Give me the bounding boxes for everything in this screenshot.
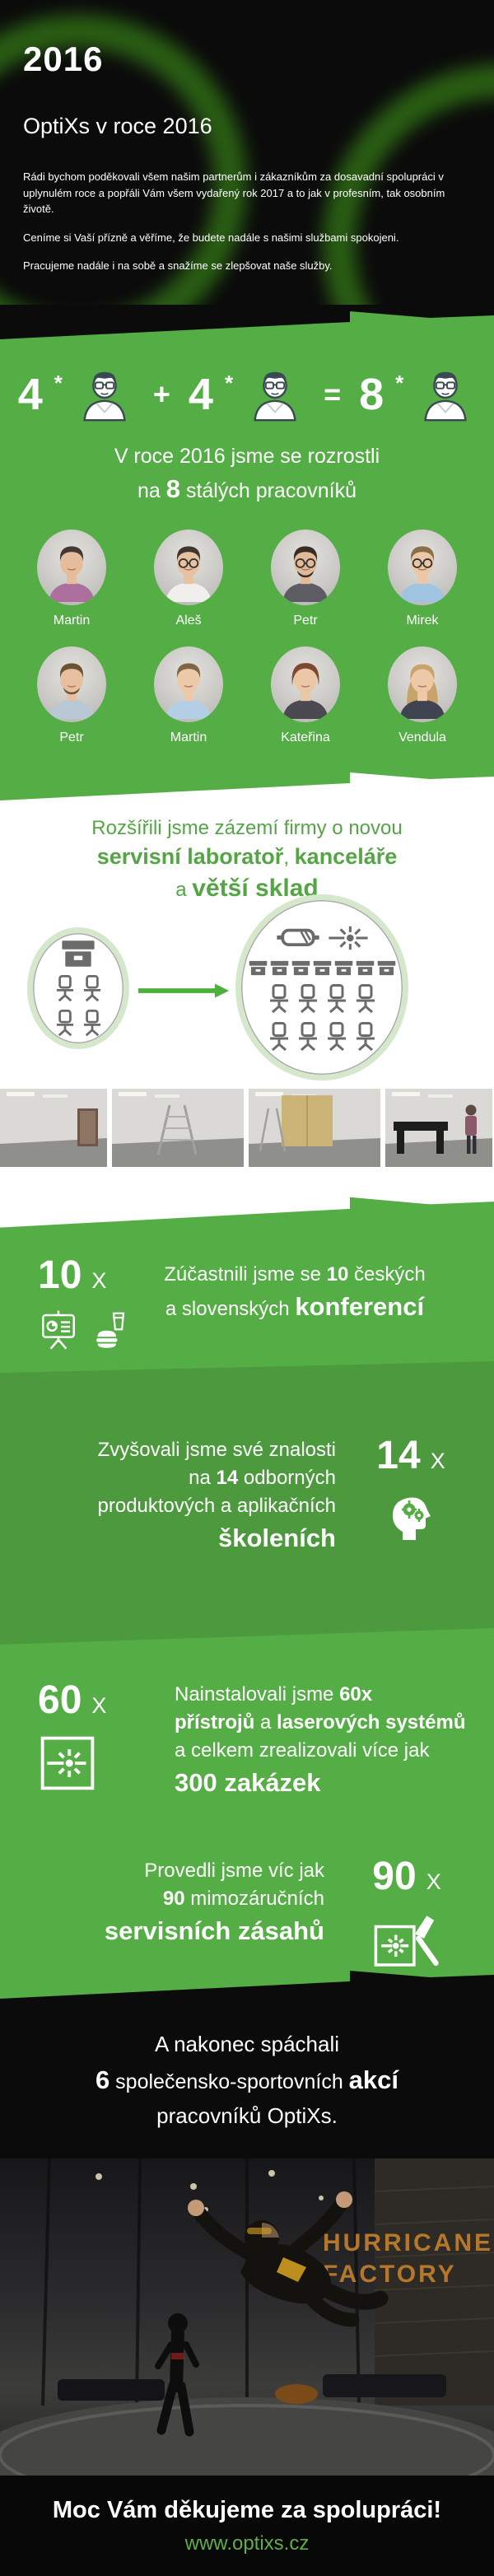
team-member: Vendula [364,646,481,745]
stat-times-label: X [91,1268,106,1294]
text-run: 300 zakázek [175,1768,321,1797]
website-link[interactable]: www.optixs.cz [185,2532,310,2555]
stat-text: Nainstalovali jsme 60xpřístrojů a lasero… [161,1681,469,1801]
avatar [37,530,106,605]
catering-icon [89,1309,128,1351]
stat-text-line: Zúčastnili jsme se 10 českých [128,1261,461,1289]
expansion-heading: Rozšířili jsme zázemí firmy o novou serv… [0,804,494,905]
text-run: kanceláře [295,844,398,869]
header-section: 2016 OptiXs v roce 2016 Rádi bychom podě… [0,0,494,305]
stat-count: 10 [38,1256,82,1295]
office-before-circle [27,927,129,1049]
stat-text-line: přístrojů a laserových systémů [175,1709,469,1737]
chair-icon [268,984,291,1014]
team-member: Martin [130,646,247,745]
member-name: Martin [54,614,90,628]
text-run: 14 [217,1467,239,1489]
diagonal-arrow-divider [0,766,494,804]
renovation-photo-optical-table-move [385,1089,492,1167]
text-run: a [254,1711,277,1734]
chair-icon [296,984,319,1014]
finale-line2: 6 společensko-sportovních akcí [0,2065,494,2095]
member-name: Mirek [406,614,438,628]
desk-icon [334,960,353,976]
stat-count: 14 [376,1436,420,1476]
goggles-icon [275,926,321,950]
text-run: přístrojů [175,1711,254,1734]
avatar [388,646,457,722]
portrait-illustration [37,646,106,722]
avatar [271,646,340,722]
text-run: českých [348,1263,425,1286]
stat-count-block: 90X [357,1857,456,1969]
chair-icon [82,975,103,1002]
diagonal-arrow-divider [0,1190,494,1231]
infographic-page: 2016 OptiXs v roce 2016 Rádi bychom podě… [0,0,494,2576]
avatar [154,646,223,722]
member-name: Petr [293,614,317,628]
stat-conferences: 10XZúčastnili jsme se 10 českýcha sloven… [0,1231,494,1367]
text-run: odborných [238,1467,336,1489]
stat-text-line: na 14 odborných [33,1464,336,1492]
finale-line3: pracovníků OptiXs. [0,2103,494,2129]
text-run: 10 [327,1263,349,1286]
text-run: 6 [96,2065,110,2094]
team-member: Aleš [130,530,247,628]
member-name: Aleš [175,614,201,628]
stat-trainings: Zvyšovali jsme své znalostina 14 odborný… [0,1367,494,1635]
stat-count-block: 10X [38,1256,128,1351]
text-run: produktových a aplikačních [98,1495,337,1517]
growth-equation: 4 * + 4 * = 8 * [0,343,494,425]
renovation-photo-room-with-ladders [112,1089,244,1167]
laser-box-icon [38,1734,97,1793]
stat-text-line: Zvyšovali jsme své znalosti [33,1436,336,1464]
intro-paragraph: Rádi bychom poděkovali všem našim partne… [23,169,478,217]
stat-text-line: Provedli jsme víc jak [33,1857,324,1885]
diagonal-arrow-divider [0,305,494,343]
text-run: 60x [339,1683,372,1706]
text-run: na [137,479,166,502]
presentation-icon [38,1309,79,1351]
stat-count: 90 [372,1857,416,1897]
stat-text-line: a slovenských konferencí [128,1289,461,1325]
stat-icons [38,1734,161,1793]
member-name: Kateřina [281,730,330,745]
year-heading: 2016 [23,40,471,79]
person-avatar-icon [245,364,305,425]
renovation-photo-empty-room [0,1089,107,1167]
person-avatar-icon [74,364,135,425]
growth-heading: V roce 2016 jsme se rozrostli na 8 stálý… [0,441,494,508]
member-name: Petr [59,730,83,745]
stat-text-line: školeních [33,1520,336,1556]
stat-text: Zvyšovali jsme své znalostina 14 odborný… [33,1436,366,1556]
text-run: stálých pracovníků [180,479,357,502]
plus-sign: + [153,377,170,412]
text-run: mimozáručních [185,1888,324,1910]
sign-text-factory: FACTORY [323,2261,457,2288]
expansion-heading-line3: a větší sklad [0,872,494,906]
thank-you-message: Moc Vám děkujeme za spolupráci! [0,2476,494,2524]
arrow-right-icon [137,982,231,1000]
stat-text-line: a celkem zrealizovali více jak [175,1737,469,1765]
chair-icon [325,984,348,1014]
stat-count: 60 [38,1681,82,1720]
text-run: a [175,879,192,901]
team-grid: MartinAlešPetrMirekPetrMartinKateřinaVen… [0,530,494,745]
service-tool-icon [372,1910,441,1969]
desk-icon [270,960,289,976]
team-member: Petr [13,646,130,745]
stat-text-line: produktových a aplikačních [33,1492,336,1520]
equals-sign: = [324,377,341,412]
intro-paragraph: Ceníme si Vaší přízně a věříme, že budet… [23,230,478,246]
chair-icon [54,975,76,1002]
desk-icon [377,960,396,976]
text-run: 8 [166,474,180,503]
expansion-heading-line2: servisní laboratoř, kanceláře [0,842,494,871]
stat-text: Zúčastnili jsme se 10 českýcha slovenský… [128,1261,461,1325]
text-run: laserových systémů [277,1711,465,1734]
stat-count-block: 60X [38,1681,161,1793]
equation-number: 8 [359,372,384,417]
chair-icon [54,1010,76,1037]
text-run: školeních [218,1524,336,1552]
renovation-photo-construction-wall [249,1089,380,1167]
asterisk: * [225,371,233,396]
portrait-illustration [37,530,106,605]
text-run: Zvyšovali jsme své znalosti [98,1439,336,1461]
text-run: na [189,1467,216,1489]
avatar [271,530,340,605]
text-run: a slovenských [165,1298,295,1320]
page-title: OptiXs v roce 2016 [23,114,471,139]
equation-number: 4 [18,372,43,417]
asterisk: * [395,371,403,396]
stat-times-label: X [91,1693,106,1719]
footer-section: Moc Vám děkujeme za spolupráci! www.opti… [0,2476,494,2576]
finale-line1: A nakonec spáchali [0,2002,494,2057]
person-avatar-icon [245,364,305,425]
growth-heading-line2: na 8 stálých pracovníků [0,471,494,508]
avatar [388,530,457,605]
stat-count-block: 14X [366,1436,456,1542]
member-name: Martin [170,730,207,745]
text-run: 90 [163,1888,185,1910]
stat-times-label: X [431,1449,445,1474]
stat-times-label: X [426,1869,441,1895]
stat-text-line: 90 mimozáručních [33,1885,324,1913]
text-run: Zúčastnili jsme se [164,1263,326,1286]
chair-icon [82,1010,103,1037]
stat-icons [384,1489,437,1542]
desk-icon [291,960,310,976]
sign-text-hurricane: HURRICANE [323,2229,493,2256]
stat-service: Provedli jsme víc jak90 mimozáručníchser… [0,1832,494,1964]
indoor-skydiving-photo: HURRICANE FACTORY [0,2158,494,2476]
chair-icon [354,984,377,1014]
text-run: akcí [349,2065,398,2094]
finale-section: A nakonec spáchali 6 společensko-sportov… [0,2002,494,2158]
equation-number: 4 [189,372,213,417]
text-run: a celkem zrealizovali více jak [175,1739,429,1762]
text-run: společensko-sportovních [110,2070,348,2093]
person-avatar-icon [415,364,476,425]
chair-icon [296,1022,319,1052]
growth-heading-line1: V roce 2016 jsme se rozrostli [0,441,494,471]
facility-expansion-section: Rozšířili jsme zázemí firmy o novou serv… [0,804,494,1190]
portrait-illustration [271,530,340,605]
person-avatar-icon [415,364,476,425]
text-run: konferencí [295,1292,424,1321]
knowledge-head-icon [384,1489,437,1542]
stat-icons [372,1910,441,1969]
desk-icon [313,960,332,976]
chair-icon [354,1022,377,1052]
stat-text-line: 300 zakázek [175,1765,469,1801]
desk-icon [61,940,96,968]
portrait-illustration [154,646,223,722]
text-run: Nainstalovali jsme [175,1683,339,1706]
portrait-illustration [154,530,223,605]
office-after-circle [235,894,408,1080]
stat-icons [38,1309,128,1351]
diagonal-arrow-divider [0,1964,494,2002]
renovation-photo-strip [0,1089,492,1167]
portrait-illustration [388,646,457,722]
stat-text-line: servisních zásahů [33,1913,324,1949]
expansion-heading-line1: Rozšířili jsme zázemí firmy o novou [0,815,494,842]
member-name: Vendula [398,730,446,745]
text-run: servisních zásahů [105,1916,324,1945]
team-member: Petr [247,530,364,628]
intro-paragraph: Pracujeme nadále i na sobě a snažíme se … [23,258,478,274]
avatar [37,646,106,722]
stat-text: Provedli jsme víc jak90 mimozáručníchser… [33,1857,357,1949]
team-member: Mirek [364,530,481,628]
laser-star-icon [327,924,370,952]
team-growth-section: 4 * + 4 * = 8 * V roce 2016 jsme se rozr… [0,343,494,766]
stat-text-line: Nainstalovali jsme 60x [175,1681,469,1709]
person-avatar-icon [74,364,135,425]
chair-icon [325,1022,348,1052]
intro-paragraphs: Rádi bychom poděkovali všem našim partne… [23,169,478,274]
text-run: servisní laboratoř [97,844,284,869]
text-run: Provedli jsme víc jak [144,1860,324,1882]
asterisk: * [54,371,63,396]
portrait-illustration [271,646,340,722]
desk-icon [249,960,268,976]
desk-icon [356,960,375,976]
team-member: Kateřina [247,646,364,745]
avatar [154,530,223,605]
portrait-illustration [388,530,457,605]
chair-icon [268,1022,291,1052]
text-run: , [283,847,294,869]
stat-installations: 60XNainstalovali jsme 60xpřístrojů a las… [0,1635,494,1832]
statistics-section: 10XZúčastnili jsme se 10 českýcha sloven… [0,1231,494,1964]
team-member: Martin [13,530,130,628]
